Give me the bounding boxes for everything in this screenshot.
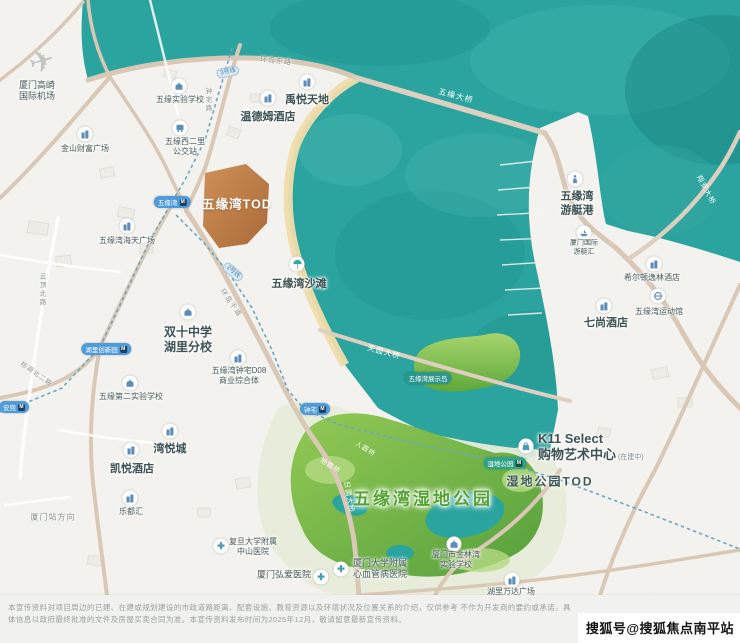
poi-wuyuan-exp-school: 五缘实验学校 (156, 95, 204, 105)
poi-wuyuan-2nd-school: 五缘第二实验学校 (99, 392, 163, 402)
poi-label-line: 希尔顿逸林酒店 (624, 273, 680, 283)
poi-label-line: 商业综合体 (212, 376, 267, 386)
metro-icon: M (120, 346, 127, 353)
road-label: 翔安大桥 (694, 174, 718, 207)
building-icon (597, 299, 612, 314)
road-label: 天圆大桥 (366, 342, 402, 361)
road-label: 五缘大桥 (437, 86, 475, 106)
plane-icon: ✈ (29, 45, 54, 80)
poi-hongai-hospital: 厦门弘爱医院 (257, 569, 311, 580)
metro-station-pill: 湿地公园M (484, 457, 527, 469)
poi-label-line: 厦门大学附属 (353, 558, 407, 569)
poi-label-line: 湖里分校 (164, 340, 212, 355)
building-icon (120, 219, 135, 234)
road-label: 地圆桥 (319, 455, 343, 475)
road-label: 人圆桥 (354, 438, 378, 458)
poi-label-line: 禹悦天地 (285, 94, 329, 108)
road-label: 厦门站方向 (31, 512, 76, 523)
poi-bus-stop: 五缘西二里公交站 (165, 137, 205, 157)
hospital-icon (214, 539, 229, 554)
poi-k11-select: K11 Select购物艺术中心 (在建中) (538, 431, 644, 464)
poi-label-line: 厦门国际 (570, 239, 598, 248)
poi-lohkah-hotel: 七尚酒店 (584, 317, 628, 331)
lighthouse-icon (568, 172, 583, 187)
poi-xinxueguan-hospital: 厦门大学附属心血管病医院 (353, 558, 407, 581)
bus-icon (173, 121, 188, 136)
poi-label-line: 五缘湾运动馆 (635, 307, 683, 317)
station-name: 安兜 (3, 402, 16, 412)
building-icon (647, 257, 662, 272)
poi-label-line: 中山医院 (229, 547, 277, 557)
hospital-icon (314, 570, 329, 585)
poi-label-line: 五缘西二里 (165, 137, 205, 147)
poi-yuyue-tiandi: 禹悦天地 (285, 94, 329, 108)
metro-station-pill: 五缘湾展示岛 (405, 372, 452, 384)
station-name: 五缘湾 (158, 197, 178, 207)
station-name: 五缘湾展示岛 (409, 373, 448, 383)
metro-line-badge: 2号线 (221, 261, 245, 284)
bag-icon (519, 439, 534, 454)
building-icon (123, 491, 138, 506)
poi-gaoqi-airport: 厦门高崎国际机场 (19, 80, 55, 103)
poi-haitian-plaza: 五缘湾海天广场 (99, 236, 155, 246)
school-icon (172, 79, 187, 94)
building-icon (231, 351, 246, 366)
poi-label-line: 实验学校 (432, 560, 480, 570)
poi-label-line: 凯悦酒店 (110, 463, 154, 477)
poi-label-line: 厦门弘爱医院 (257, 569, 311, 580)
poi-label-line: 游艇港 (561, 204, 594, 218)
road-label: 环岛干道 (218, 287, 245, 319)
poi-hilton-doubletree: 希尔顿逸林酒店 (624, 273, 680, 283)
poi-jinshan-plaza: 金山财富广场 (61, 144, 109, 154)
poi-label-line: 公交站 (165, 147, 205, 157)
poi-label-line: 复旦大学附属 (229, 537, 277, 547)
metro-station-pill: 钟宅M (300, 403, 330, 415)
disclaimer-line-1: 本宣传资料对项目周边的已建、在建或规划建设的市政道路距离、配套设施、教育资源以及… (8, 602, 734, 613)
building-icon (124, 443, 139, 458)
poi-label-line: 购物艺术中心 (在建中) (538, 447, 644, 463)
poi-label-line: K11 Select (538, 431, 644, 447)
poi-shuangshi-school: 双十中学湖里分校 (164, 325, 212, 355)
poi-label-line: 五缘第二实验学校 (99, 392, 163, 402)
area-label-wuyuanwan-tod: 五缘湾TOD (202, 194, 272, 213)
building-icon (78, 127, 93, 142)
school-icon (181, 305, 196, 320)
road-label: 环岛东路 (260, 54, 293, 67)
road-label: 枋湖北二路 (19, 358, 55, 388)
poi-label-line: 五缘湾 (561, 190, 594, 204)
building-icon (261, 91, 276, 106)
poi-label-line: 五缘湾海天广场 (99, 236, 155, 246)
poi-label-line: 乐都汇 (119, 507, 143, 517)
metro-icon: M (179, 199, 186, 206)
metro-icon: M (319, 406, 326, 413)
area-label-shidi-tod: 湿地公园TOD (506, 473, 593, 490)
building-icon (163, 424, 178, 439)
metro-station-pill: 安兜M (0, 401, 29, 413)
poi-wuyuan-beach: 五缘湾沙滩 (272, 278, 327, 292)
metro-station-pill: 湖里创新园M (81, 343, 131, 355)
beach-icon (290, 257, 305, 272)
area-label-wetland-park: 五缘湾湿地公园 (353, 485, 493, 510)
poi-label-line: 厦门市金林湾 (432, 550, 480, 560)
label-layer: ✈厦门高崎国际机场金山财富广场五缘实验学校五缘西二里公交站禹悦天地温德姆酒店五缘… (0, 0, 740, 643)
poi-intl-yacht-club: 厦门国际游艇汇 (570, 239, 598, 257)
boat-icon (577, 226, 592, 241)
road-label: 云顶北路 (36, 273, 46, 307)
road-label: 钟宅路 (202, 87, 212, 113)
poi-d08-complex: 五缘湾钟宅D08商业综合体 (212, 366, 267, 386)
poi-label-line: 心血管病医院 (353, 569, 407, 580)
poi-label-line: 双十中学 (164, 325, 212, 340)
poi-label-line: 湾悦城 (154, 443, 187, 457)
metro-station-pill: 五缘湾M (154, 196, 191, 208)
metro-icon: M (516, 460, 523, 467)
poi-label-line: 金山财富广场 (61, 144, 109, 154)
poi-label-line: 厦门高崎 (19, 80, 55, 91)
poi-sports-hall: 五缘湾运动馆 (635, 307, 683, 317)
map-screenshot: ✈厦门高崎国际机场金山财富广场五缘实验学校五缘西二里公交站禹悦天地温德姆酒店五缘… (0, 0, 740, 643)
station-name: 湿地公园 (488, 458, 514, 468)
poi-label-line: 温德姆酒店 (241, 111, 296, 125)
poi-wanyuecheng: 湾悦城 (154, 443, 187, 457)
metro-line-badge: 3号线 (216, 65, 241, 80)
poi-label-line: 五缘实验学校 (156, 95, 204, 105)
poi-wyndham-hotel: 温德姆酒店 (241, 111, 296, 125)
station-name: 湖里创新园 (85, 344, 118, 354)
building-icon (300, 75, 315, 90)
poi-leduhui: 乐都汇 (119, 507, 143, 517)
sport-icon (651, 289, 666, 304)
poi-zhongshan-hospital: 复旦大学附属中山医院 (229, 537, 277, 557)
poi-label-suffix: (在建中) (616, 454, 644, 461)
poi-label-line: 五缘湾钟宅D08 (212, 366, 267, 376)
poi-label-line: 国际机场 (19, 91, 55, 102)
building-icon (505, 573, 520, 588)
hospital-icon (334, 562, 349, 577)
poi-jinlinwan-school: 厦门市金林湾实验学校 (432, 550, 480, 570)
metro-icon: M (18, 404, 25, 411)
sohu-watermark: 搜狐号@搜狐焦点南平站 (578, 613, 740, 643)
poi-hyatt-hotel: 凯悦酒店 (110, 463, 154, 477)
school-icon (123, 376, 138, 391)
station-name: 钟宅 (304, 404, 317, 414)
poi-yacht-harbor: 五缘湾游艇港 (561, 190, 594, 218)
poi-label-line: 七尚酒店 (584, 317, 628, 331)
poi-label-line: 五缘湾沙滩 (272, 278, 327, 292)
poi-label-line: 游艇汇 (570, 248, 598, 257)
